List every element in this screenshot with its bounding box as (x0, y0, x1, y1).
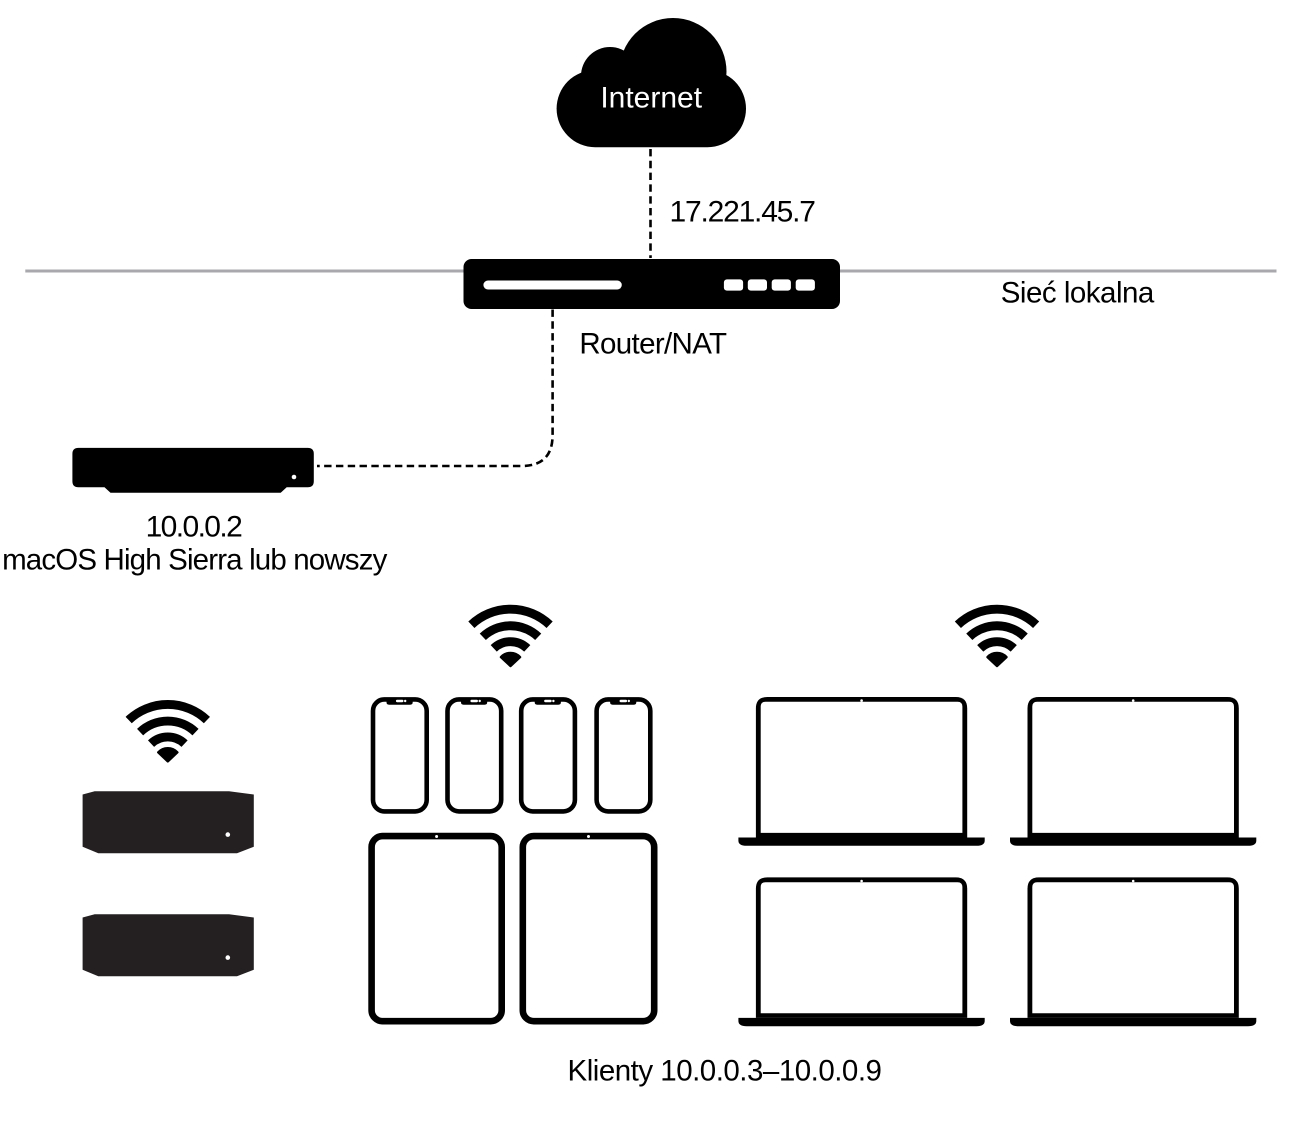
svg-text:17.221.45.7: 17.221.45.7 (670, 195, 816, 228)
svg-text:Internet: Internet (600, 81, 702, 114)
svg-text:Klienty 10.0.0.3–10.0.0.9: Klienty 10.0.0.3–10.0.0.9 (568, 1055, 882, 1088)
svg-text:Router/NAT: Router/NAT (579, 328, 727, 361)
svg-text:10.0.0.2: 10.0.0.2 (146, 511, 243, 544)
svg-text:macOS High Sierra lub nowszy: macOS High Sierra lub nowszy (2, 544, 388, 577)
svg-text:Sieć lokalna: Sieć lokalna (1001, 276, 1155, 309)
